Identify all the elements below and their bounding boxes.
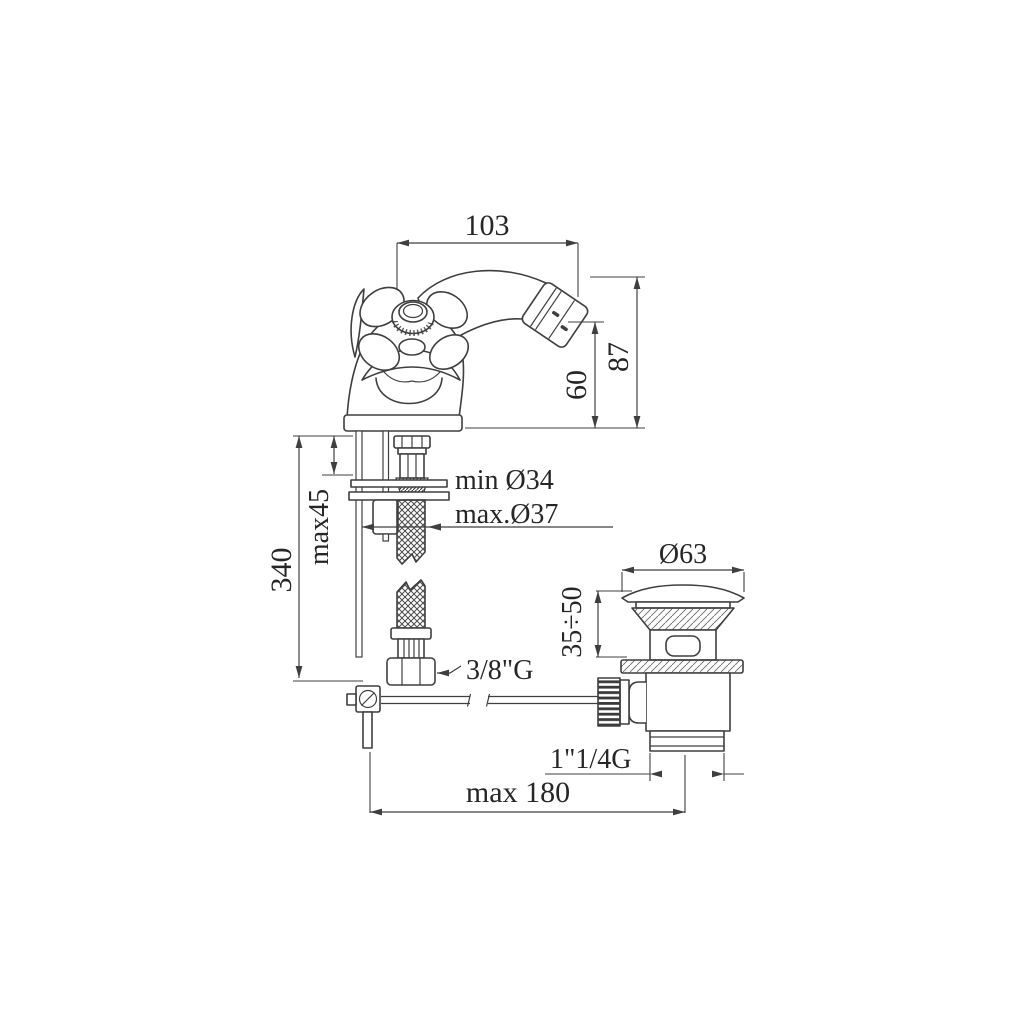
waste-thread xyxy=(650,731,724,751)
knurled-connector xyxy=(598,678,620,726)
dim-outlet-height: 60 xyxy=(560,370,593,400)
waste-plug-cap xyxy=(622,585,744,602)
pop-up-linkage xyxy=(347,686,599,748)
clamp-plate xyxy=(349,492,449,500)
dim-spout-height: 87 xyxy=(602,342,635,372)
overflow-window xyxy=(666,636,700,656)
label-hole-max: max.Ø37 xyxy=(455,499,558,530)
label-waste-thread: 1"1/4G xyxy=(550,744,631,775)
waste-body xyxy=(646,673,730,731)
waste-assembly xyxy=(598,585,744,751)
horizontal-rod xyxy=(381,694,471,707)
mounting-nut xyxy=(373,500,398,534)
technical-drawing: 103 87 60 340 max45 min Ø34 max.Ø37 3/8"… xyxy=(0,0,1024,1024)
waste-cone xyxy=(632,608,734,630)
label-supply-thread: 3/8"G xyxy=(466,655,533,686)
washer-plate xyxy=(351,480,447,487)
label-hole-min: min Ø34 xyxy=(455,465,554,496)
drawing-canvas: 103 87 60 340 max45 min Ø34 max.Ø37 3/8"… xyxy=(0,0,1024,1024)
dim-deck-max: max45 xyxy=(304,489,335,565)
dim-waste-height-range: 35÷50 xyxy=(557,586,588,657)
mounting-stud xyxy=(383,431,389,500)
dim-waste-cap-dia: Ø63 xyxy=(659,539,707,570)
pop-up-rod xyxy=(356,431,362,657)
faucet-base xyxy=(344,415,462,431)
dim-supply-length: 340 xyxy=(265,548,298,593)
dim-spout-reach: 103 xyxy=(465,209,510,242)
shank xyxy=(400,454,424,478)
hose-thread-leader xyxy=(437,666,461,673)
side-inlet xyxy=(629,682,646,723)
dim-rod-reach: max 180 xyxy=(466,776,570,809)
waste-flange xyxy=(621,660,743,673)
hose-nut xyxy=(387,658,435,685)
